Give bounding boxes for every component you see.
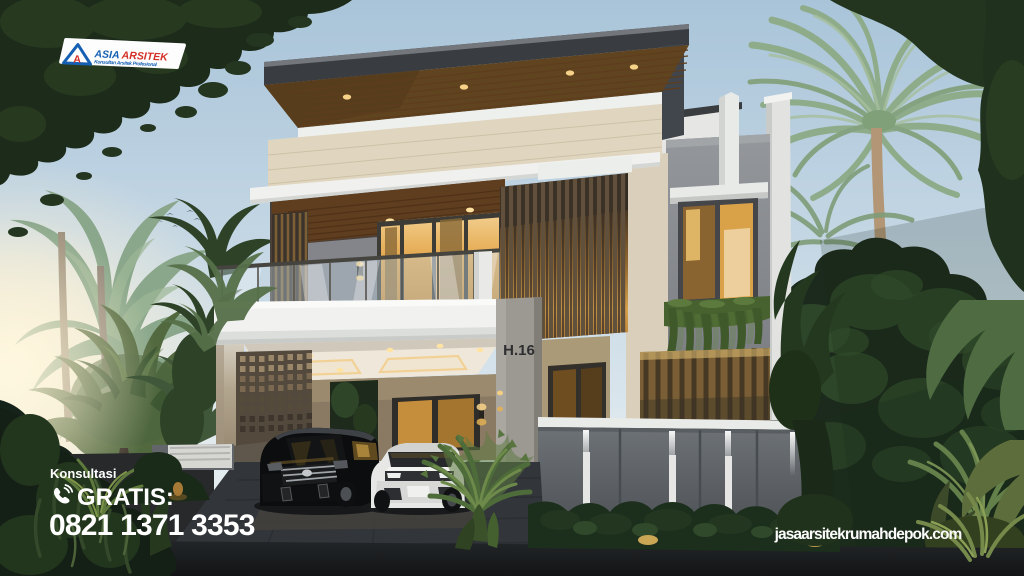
svg-text:A: A xyxy=(73,53,82,65)
svg-text:GRATIS:: GRATIS: xyxy=(77,484,174,511)
svg-text:H.16: H.16 xyxy=(503,342,535,359)
svg-text:0821 1371 3353: 0821 1371 3353 xyxy=(49,509,255,542)
svg-text:Konsultasi: Konsultasi xyxy=(50,466,116,481)
svg-text:jasaarsitekrumahdepok.com: jasaarsitekrumahdepok.com xyxy=(774,526,962,543)
